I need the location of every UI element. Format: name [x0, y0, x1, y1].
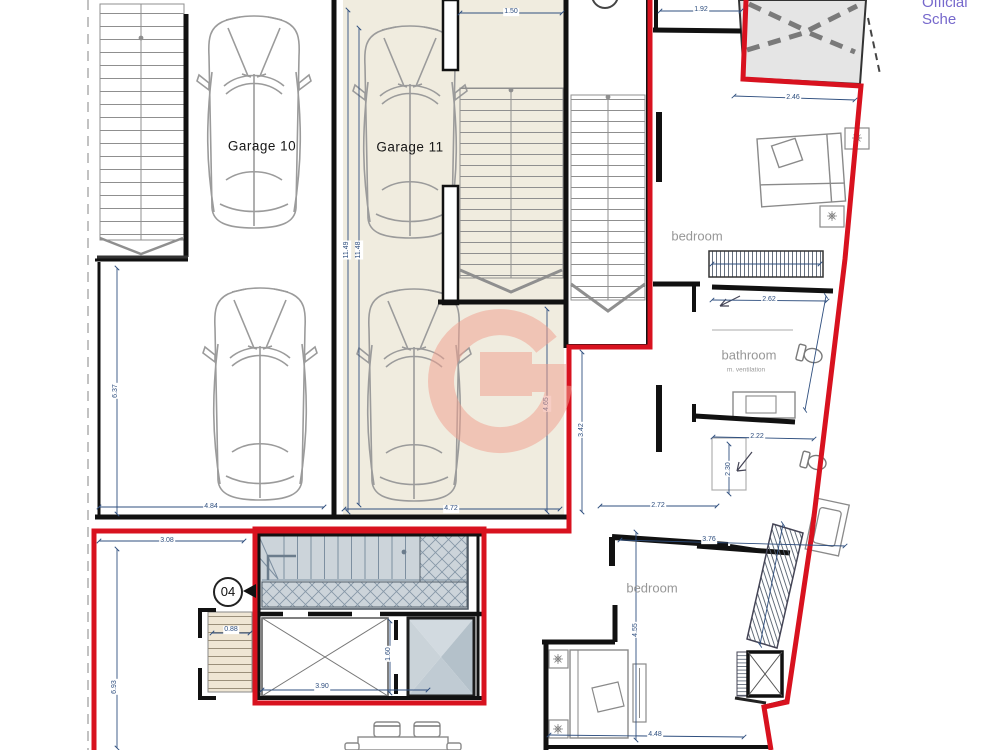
skylight-pyramid: [408, 618, 474, 696]
door-arrow: [720, 296, 740, 306]
dimension-label: 3.90: [314, 683, 330, 691]
roof-hatched-area: [739, 0, 866, 84]
dimension-label: 6.37: [112, 383, 120, 399]
toilet: [796, 344, 824, 366]
bed: [757, 133, 846, 207]
dimension-label: 4.55: [632, 622, 640, 638]
dimension-label: 2.62: [761, 296, 777, 304]
garage11-label: Garage 11: [376, 140, 443, 155]
dimension-label: 11.48: [355, 241, 363, 260]
dimension-label: 3.08: [159, 537, 175, 545]
bathroom-note-label: m. ventilation: [727, 367, 765, 374]
dimension-label: 1.50: [503, 8, 519, 16]
dimension-label: 4.72: [443, 505, 459, 513]
dimension-label: 11.49: [343, 241, 351, 260]
dimension-label: 4.65: [543, 396, 551, 412]
bedroom-top-label: bedroom: [671, 229, 722, 244]
dimension-label: 2.46: [785, 94, 801, 102]
official-scheme-watermark-text: Official Sche: [922, 0, 1000, 28]
exterior-wall-dashed: [868, 18, 880, 74]
unit-04-badge: 04: [213, 577, 243, 607]
table-and-chairs: [345, 722, 461, 750]
car-garage10-top: [197, 16, 311, 228]
floor-plan-drawing: [0, 0, 1000, 750]
stair-core-unit: [257, 533, 482, 698]
bedroom-bottom-room: [542, 537, 772, 750]
dimension-label: 4.84: [203, 503, 219, 511]
dimension-label: 4.48: [647, 731, 663, 739]
entry-stair-small: [200, 610, 252, 698]
dimension-label: 2.72: [650, 502, 666, 510]
dimension-label: 6.93: [111, 679, 119, 695]
staircase-top-left: [97, 4, 188, 257]
unit-04-arrow: [243, 584, 256, 598]
clipped-badge-circle: [592, 0, 618, 8]
bedroom-bottom-label: bedroom: [626, 581, 677, 596]
dimension-label: 2.22: [749, 433, 765, 441]
car-garage10-bottom: [203, 288, 317, 500]
dimension-label: 1.60: [385, 646, 393, 662]
dimension-label: 2.30: [725, 461, 733, 477]
dimension-label: 3.42: [578, 422, 586, 438]
door-arrow: [737, 452, 752, 471]
radiator-slanted: [747, 524, 803, 648]
garage10-label: Garage 10: [228, 139, 296, 154]
dimension-label: 0.88: [223, 626, 239, 634]
bathroom-label: bathroom: [722, 348, 777, 363]
dimension-label: 1.92: [693, 6, 709, 14]
pillow: [592, 682, 624, 712]
floor-plan-page: Official Sche Garage 10 Garage 11 bedroo…: [0, 0, 1000, 750]
duct-hatch: [737, 652, 747, 696]
staircase-center-right: [565, 0, 652, 348]
dimension-label: 3.76: [701, 536, 717, 544]
